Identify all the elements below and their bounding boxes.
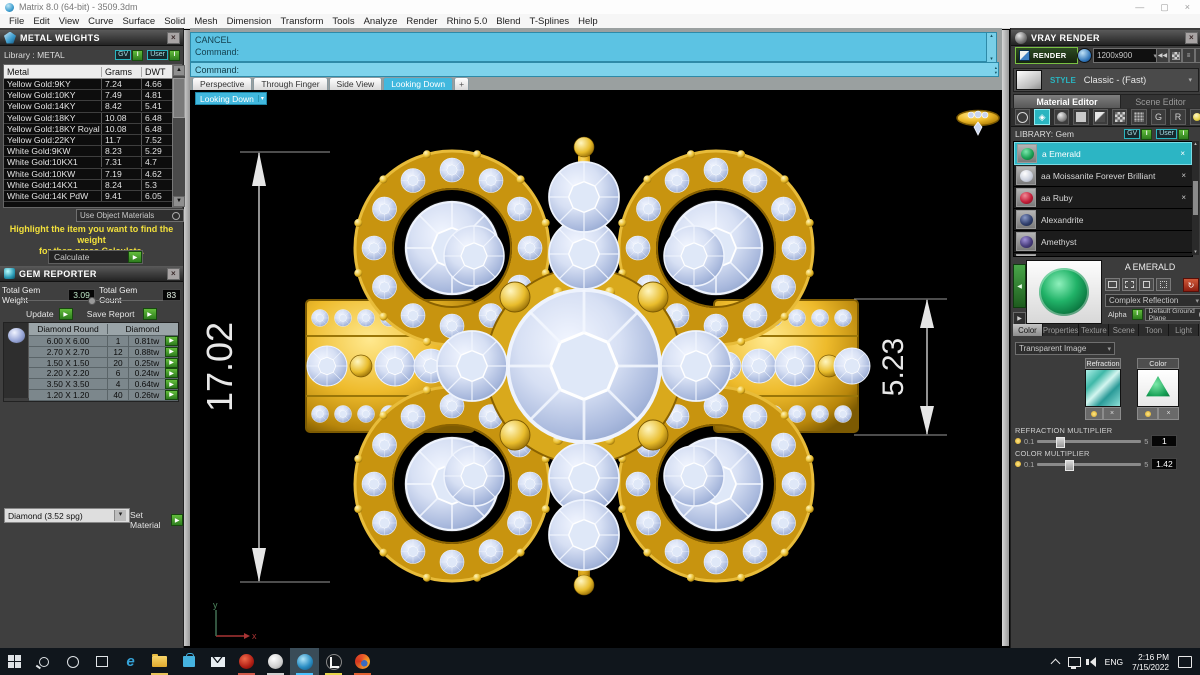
- splitter-handle[interactable]: [88, 297, 96, 305]
- gem-row-go-icon[interactable]: ▶: [165, 379, 178, 389]
- gem-row-go-icon[interactable]: ▶: [165, 368, 178, 378]
- user-toggle[interactable]: User I: [1156, 129, 1189, 140]
- scroll-thumb[interactable]: [173, 78, 185, 118]
- menu-file[interactable]: File: [9, 16, 24, 27]
- close-panel-icon[interactable]: ×: [167, 268, 180, 280]
- diamond-icon: [7, 327, 26, 344]
- title-bar: Matrix 8.0 (64-bit) - 3509.3dm — ▢ ×: [0, 0, 1200, 14]
- gem-row[interactable]: 3.50 X 3.5040.64tw▶: [29, 379, 178, 390]
- material-action-toolbar: [1105, 278, 1171, 291]
- app-icon: [5, 3, 14, 12]
- rough-material-icon[interactable]: [1131, 109, 1146, 125]
- gv-toggle-button[interactable]: I: [1141, 129, 1152, 140]
- vray-icon: [297, 654, 313, 670]
- copy-material-button[interactable]: [1139, 278, 1154, 291]
- close-panel-icon[interactable]: ×: [1185, 32, 1198, 44]
- remove-material-icon[interactable]: ×: [1180, 149, 1185, 158]
- tab-toon[interactable]: Toon: [1139, 324, 1169, 336]
- color-multiplier-value[interactable]: 1.42: [1151, 458, 1177, 470]
- axis-y-label: y: [213, 600, 218, 610]
- table-row[interactable]: Yellow Gold:22KY11.77.52: [4, 135, 172, 146]
- slider-thumb[interactable]: [1056, 437, 1065, 448]
- gem-row[interactable]: 6.00 X 6.0010.81tw▶: [29, 336, 178, 347]
- metal-library-label: Library : METAL: [4, 50, 65, 60]
- vray-app-button[interactable]: [290, 648, 319, 675]
- scroll-down-icon[interactable]: ▼: [173, 196, 185, 207]
- viewport-tabs: Perspective Through Finger Side View Loo…: [192, 77, 469, 90]
- language-indicator[interactable]: ENG: [1105, 657, 1123, 667]
- alpha-toggle[interactable]: Alpha: [1105, 309, 1130, 320]
- emerald-preview-image: [1039, 268, 1089, 316]
- file-explorer-button[interactable]: [145, 648, 174, 675]
- volume-icon[interactable]: [1090, 657, 1096, 667]
- table-row-clipped: [4, 202, 172, 207]
- flat-material-icon[interactable]: [1073, 109, 1088, 125]
- menu-help[interactable]: Help: [578, 16, 598, 27]
- task-view-button[interactable]: [87, 648, 116, 675]
- brightness-icon: [1015, 438, 1021, 444]
- command-history-line: Command:: [195, 46, 989, 58]
- metal-library-row: Library : METAL GV I User I: [4, 49, 180, 61]
- ring-side-view-object: [957, 111, 999, 136]
- style-thumbnail: [1016, 70, 1042, 90]
- total-gem-count-label: Total Gem Count: [99, 285, 160, 305]
- brightness-icon: [1015, 461, 1021, 467]
- tab-side-view[interactable]: Side View: [329, 77, 383, 90]
- slider-track[interactable]: [1037, 463, 1141, 466]
- table-row[interactable]: Yellow Gold:18KY Royal10.086.48: [4, 124, 172, 135]
- matrix-logo-icon: [4, 32, 16, 44]
- gem-row[interactable]: 2.20 X 2.2060.24tw▶: [29, 368, 178, 379]
- table-row[interactable]: White Gold:9KW8.235.29: [4, 146, 172, 157]
- style-label: STYLE: [1050, 76, 1076, 85]
- glossy-material-icon[interactable]: [1093, 109, 1108, 125]
- slider-track[interactable]: [1037, 440, 1141, 443]
- clock[interactable]: 2:16 PM 7/15/2022: [1132, 652, 1169, 672]
- close-panel-icon[interactable]: ×: [167, 32, 180, 44]
- gem-row[interactable]: 1.20 X 1.20400.26tw▶: [29, 390, 178, 401]
- selected-material-name: A EMERALD: [1103, 262, 1197, 272]
- date: 7/15/2022: [1132, 662, 1169, 672]
- menu-render[interactable]: Render: [406, 16, 437, 27]
- render-log-button[interactable]: ≡: [1182, 48, 1195, 63]
- viewport-canvas[interactable]: Looking Down ▾: [190, 90, 1002, 648]
- maximize-button[interactable]: ▢: [1160, 0, 1169, 14]
- material-thumbnail: [1016, 166, 1036, 185]
- list-item-alexandrite[interactable]: Alexandrite: [1014, 209, 1192, 231]
- style-value: Classic - (Fast): [1084, 75, 1147, 85]
- gem-table: Diamond Round Diamond 6.00 X 6.0010.81tw…: [3, 322, 179, 402]
- update-go-icon[interactable]: ▶: [59, 308, 73, 320]
- user-toggle[interactable]: User I: [147, 50, 180, 61]
- material-list: a Emerald × aa Moissanite Forever Brilli…: [1013, 141, 1193, 257]
- table-row[interactable]: Yellow Gold:18KY10.086.48: [4, 113, 172, 124]
- color-texture-image[interactable]: [1137, 369, 1179, 407]
- table-row[interactable]: Yellow Gold:10KY7.494.81: [4, 90, 172, 101]
- windows-icon: [8, 655, 21, 668]
- mail-button[interactable]: [203, 648, 232, 675]
- matrix-app-button[interactable]: [232, 648, 261, 675]
- scroll-up-icon[interactable]: ▲: [173, 65, 185, 76]
- gem-library-row: LIBRARY: Gem GV I User I: [1015, 128, 1197, 140]
- center-cluster: [437, 137, 731, 595]
- command-history-line: CANCEL: [195, 34, 989, 46]
- scroll-up-icon[interactable]: ▴: [990, 33, 993, 39]
- viewport-column: CANCEL Command: ▴ ▾ Command: ▴▾ Perspect…: [190, 28, 1002, 648]
- vray-logo-icon: [1019, 50, 1030, 61]
- export-gv-icon[interactable]: G: [1151, 109, 1166, 125]
- command-input[interactable]: Command: ▴▾: [190, 62, 999, 77]
- material-list-scrollbar[interactable]: ▴ ▾: [1192, 141, 1199, 255]
- menu-tsplines[interactable]: T-Splines: [530, 16, 570, 27]
- resolution-dropdown[interactable]: 1200x900 ▾: [1093, 48, 1161, 63]
- calculate-button[interactable]: Calculate ▶: [48, 250, 143, 264]
- transparent-image-dropdown[interactable]: Transparent Image ▾: [1015, 342, 1115, 355]
- table-row[interactable]: White Gold:14KX18.245.3: [4, 180, 172, 191]
- sphere-material-icon[interactable]: [1054, 109, 1069, 125]
- menu-blend[interactable]: Blend: [496, 16, 520, 27]
- remove-material-icon[interactable]: ×: [1181, 193, 1186, 202]
- window-title: Matrix 8.0 (64-bit) - 3509.3dm: [19, 2, 138, 12]
- command-spinner[interactable]: ▴▾: [995, 65, 997, 75]
- history-back-button[interactable]: ◀◀: [1156, 48, 1169, 63]
- minimize-button[interactable]: —: [1135, 0, 1144, 14]
- metal-table-scrollbar[interactable]: ▲ ▼: [172, 65, 185, 207]
- gem-row[interactable]: 2.70 X 2.70120.88tw▶: [29, 347, 178, 358]
- right-dock-splitter[interactable]: [1002, 30, 1009, 646]
- browser-app-button[interactable]: [348, 648, 377, 675]
- style-row[interactable]: STYLE Classic - (Fast) ▾: [1013, 68, 1199, 92]
- refraction-texture-image[interactable]: [1085, 369, 1121, 407]
- metal-table-header: Metal Grams DWT: [4, 65, 172, 79]
- load-material-button[interactable]: [1122, 278, 1137, 291]
- left-panel: METAL WEIGHTS × Library : METAL GV I Use…: [0, 28, 184, 648]
- refraction-swatch[interactable]: Refraction ×: [1085, 358, 1121, 420]
- pick-color-button[interactable]: [1085, 407, 1103, 420]
- detail-tabs: Color Properties Texture Scene Toon Ligh…: [1013, 324, 1199, 336]
- menu-rhino[interactable]: Rhino 5.0: [447, 16, 488, 27]
- edge-button[interactable]: e: [116, 648, 145, 675]
- menu-surface[interactable]: Surface: [122, 16, 155, 27]
- matrix-icon: [239, 654, 254, 669]
- gem-table-header: Diamond Round Diamond: [29, 323, 178, 336]
- close-button[interactable]: ×: [1185, 0, 1190, 14]
- material-thumbnail: [1016, 254, 1036, 257]
- color-multiplier-label: COLOR MULTIPLIER: [1015, 449, 1090, 458]
- menu-analyze[interactable]: Analyze: [364, 16, 398, 27]
- material-type-toolbar: ◈ G R: [1011, 108, 1200, 127]
- cortana-button[interactable]: [58, 648, 87, 675]
- gem-actions-row: Update ▶ Save Report ▶: [26, 308, 176, 320]
- clear-texture-button[interactable]: ×: [1158, 407, 1179, 420]
- list-item-clipped[interactable]: [1014, 253, 1192, 257]
- gem-row-go-icon[interactable]: ▶: [165, 358, 178, 368]
- gem-material-icon[interactable]: ◈: [1034, 109, 1049, 125]
- table-row[interactable]: Yellow Gold:14KY8.425.41: [4, 101, 172, 112]
- edge-icon: e: [126, 654, 134, 669]
- command-history-scrollbar[interactable]: ▴ ▾: [986, 32, 997, 63]
- list-item-emerald[interactable]: a Emerald ×: [1014, 142, 1192, 165]
- material-thumbnail: [1016, 232, 1036, 251]
- ring-3d-scene: 17.02 5.23: [190, 90, 1002, 648]
- list-item-amethyst[interactable]: Amethyst: [1014, 231, 1192, 253]
- folder-icon: [152, 656, 167, 667]
- render-button[interactable]: RENDER: [1015, 47, 1078, 64]
- notification-center-icon[interactable]: [1178, 656, 1192, 668]
- table-row[interactable]: White Gold:14K PdW9.416.05: [4, 191, 172, 202]
- gem-reporter-title: GEM REPORTER: [19, 269, 97, 279]
- table-row[interactable]: White Gold:10KW7.194.62: [4, 169, 172, 180]
- rhino-icon: [268, 654, 283, 669]
- system-tray: ENG 2:16 PM 7/15/2022: [1052, 652, 1200, 672]
- vray-title: VRAY RENDER: [1031, 33, 1100, 43]
- material-thumbnail: [1016, 188, 1036, 207]
- refraction-multiplier-slider: 0.1 5 1: [1015, 435, 1177, 447]
- metal-weights-title: METAL WEIGHTS: [20, 33, 100, 43]
- metal-weights-table: Metal Grams DWT Yellow Gold:9KY7.244.66 …: [3, 64, 182, 208]
- menu-bar: File Edit View Curve Surface Solid Mesh …: [0, 14, 1200, 29]
- color-swatch[interactable]: Color ×: [1137, 358, 1179, 420]
- update-button[interactable]: Update: [26, 309, 54, 319]
- axis-gizmo: x y: [213, 600, 257, 641]
- render-options-icon[interactable]: [1077, 48, 1092, 63]
- gv-toggle[interactable]: GV I: [1124, 129, 1152, 140]
- vray-sphere-icon: [1015, 32, 1027, 44]
- menu-edit[interactable]: Edit: [33, 16, 49, 27]
- total-gem-weight-label: Total Gem Weight: [2, 285, 66, 305]
- menu-tools[interactable]: Tools: [332, 16, 354, 27]
- rhino-app-button[interactable]: [261, 648, 290, 675]
- user-toggle-button[interactable]: I: [1178, 129, 1189, 140]
- table-row[interactable]: White Gold:10KX17.314.7: [4, 157, 172, 168]
- dimension-band-width-value: 5.23: [877, 338, 910, 396]
- save-report-go-icon[interactable]: ▶: [143, 308, 157, 320]
- list-item-moissanite[interactable]: aa Moissanite Forever Brilliant ×: [1014, 165, 1192, 187]
- tray-expand-icon[interactable]: [1050, 658, 1060, 668]
- dropdown-caret-icon[interactable]: ▾: [114, 510, 126, 521]
- material-thumbnail: [1017, 144, 1037, 163]
- gem-reporter-icon: [4, 268, 15, 279]
- store-icon: [183, 656, 195, 667]
- gem-row-go-icon[interactable]: ▶: [165, 347, 178, 357]
- tab-looking-down[interactable]: Looking Down: [383, 77, 453, 90]
- save-material-button[interactable]: [1105, 278, 1120, 291]
- pattern-material-icon[interactable]: [1112, 109, 1127, 125]
- store-button[interactable]: [174, 648, 203, 675]
- gem-type-cell[interactable]: [4, 323, 29, 398]
- vray-panel: VRAY RENDER × RENDER 1200x900 ▾ ◀◀ ≡ STY…: [1010, 28, 1200, 648]
- alpha-row: Alpha I Default Ground Plane: [1105, 308, 1200, 321]
- ground-plane-dropdown[interactable]: Default Ground Plane: [1145, 308, 1200, 321]
- table-row[interactable]: Yellow Gold:9KY7.244.66: [4, 79, 172, 90]
- menu-dimension[interactable]: Dimension: [227, 16, 272, 27]
- tab-light[interactable]: Light: [1169, 324, 1199, 336]
- gv-toggle-button[interactable]: I: [132, 50, 143, 61]
- browser-icon: [355, 654, 370, 669]
- task-view-icon: [96, 656, 108, 667]
- menu-mesh[interactable]: Mesh: [194, 16, 217, 27]
- previous-material-button[interactable]: ◀: [1013, 264, 1026, 308]
- tab-through-finger[interactable]: Through Finger: [253, 77, 327, 90]
- calculate-go-icon[interactable]: ▶: [128, 251, 142, 263]
- dimension-height-value: 17.02: [199, 322, 240, 412]
- save-report-button[interactable]: Save Report: [87, 309, 135, 319]
- mail-icon: [211, 657, 225, 667]
- new-viewport-tab[interactable]: +: [454, 77, 469, 90]
- axis-x-label: x: [252, 631, 257, 641]
- network-icon[interactable]: [1068, 657, 1081, 667]
- dropdown-caret-icon: ▾: [1188, 76, 1192, 84]
- render-channels-button[interactable]: [1169, 48, 1182, 63]
- gem-material-dropdown[interactable]: Diamond (3.52 spg) ▾: [4, 508, 130, 523]
- lumion-app-button[interactable]: [319, 648, 348, 675]
- command-history[interactable]: CANCEL Command:: [190, 32, 990, 62]
- tab-perspective[interactable]: Perspective: [192, 77, 252, 90]
- refraction-multiplier-value[interactable]: 1: [1151, 435, 1177, 447]
- gear-icon: [172, 212, 180, 220]
- object-materials-dropdown[interactable]: Use Object Materials: [76, 209, 184, 222]
- gem-row[interactable]: 1.50 X 1.50200.25tw▶: [29, 358, 178, 369]
- gv-toggle[interactable]: GV I: [115, 50, 143, 61]
- search-button[interactable]: [29, 648, 58, 675]
- search-icon: [39, 657, 49, 667]
- reflection-dropdown[interactable]: Complex Reflection ▾: [1105, 294, 1200, 307]
- list-item-ruby[interactable]: aa Ruby ×: [1014, 187, 1192, 209]
- total-gem-count-value: 83: [162, 289, 181, 301]
- remove-material-icon[interactable]: ×: [1181, 171, 1186, 180]
- clear-texture-button[interactable]: ×: [1103, 407, 1121, 420]
- set-material-row: Set Material ▶: [130, 510, 183, 530]
- menu-curve[interactable]: Curve: [88, 16, 113, 27]
- cortana-icon: [67, 656, 79, 668]
- set-material-button[interactable]: Set Material: [130, 510, 167, 530]
- color-multiplier-slider: 0.1 5 1.42: [1015, 458, 1177, 470]
- start-button[interactable]: [0, 648, 29, 675]
- taskbar: e ENG 2:16 PM 7/15/2022: [0, 648, 1200, 675]
- tab-texture[interactable]: Texture: [1079, 324, 1109, 336]
- export-rhino-icon[interactable]: R: [1170, 109, 1185, 125]
- text-tool-button[interactable]: [1195, 48, 1200, 63]
- metal-material-icon[interactable]: [1015, 109, 1030, 125]
- tab-properties[interactable]: Properties: [1043, 324, 1080, 336]
- gem-library-label: LIBRARY: Gem: [1015, 129, 1074, 139]
- channels-icon: [1172, 52, 1180, 60]
- material-preview[interactable]: [1026, 260, 1102, 324]
- user-toggle-button[interactable]: I: [169, 50, 180, 61]
- slider-thumb[interactable]: [1065, 460, 1074, 471]
- gem-row-go-icon[interactable]: ▶: [165, 390, 178, 400]
- lumion-icon: [326, 654, 342, 670]
- refraction-multiplier-label: REFRACTION MULTIPLIER: [1015, 426, 1112, 435]
- tab-color[interactable]: Color: [1013, 324, 1043, 336]
- gem-row-go-icon[interactable]: ▶: [165, 336, 178, 346]
- light-material-icon[interactable]: [1190, 109, 1200, 125]
- menu-view[interactable]: View: [59, 16, 79, 27]
- tab-scene[interactable]: Scene: [1109, 324, 1139, 336]
- paste-material-button[interactable]: [1156, 278, 1171, 291]
- gem-reporter-header[interactable]: GEM REPORTER ×: [0, 266, 183, 282]
- alpha-toggle-button[interactable]: I: [1132, 309, 1143, 320]
- refresh-preview-button[interactable]: ↻: [1183, 278, 1199, 292]
- pick-color-button[interactable]: [1137, 407, 1158, 420]
- time: 2:16 PM: [1132, 652, 1169, 662]
- set-material-go-icon[interactable]: ▶: [171, 514, 183, 526]
- vray-header[interactable]: VRAY RENDER ×: [1011, 30, 1200, 46]
- material-thumbnail: [1016, 210, 1036, 229]
- menu-transform[interactable]: Transform: [280, 16, 323, 27]
- menu-solid[interactable]: Solid: [164, 16, 185, 27]
- metal-weights-header[interactable]: METAL WEIGHTS ×: [0, 30, 183, 46]
